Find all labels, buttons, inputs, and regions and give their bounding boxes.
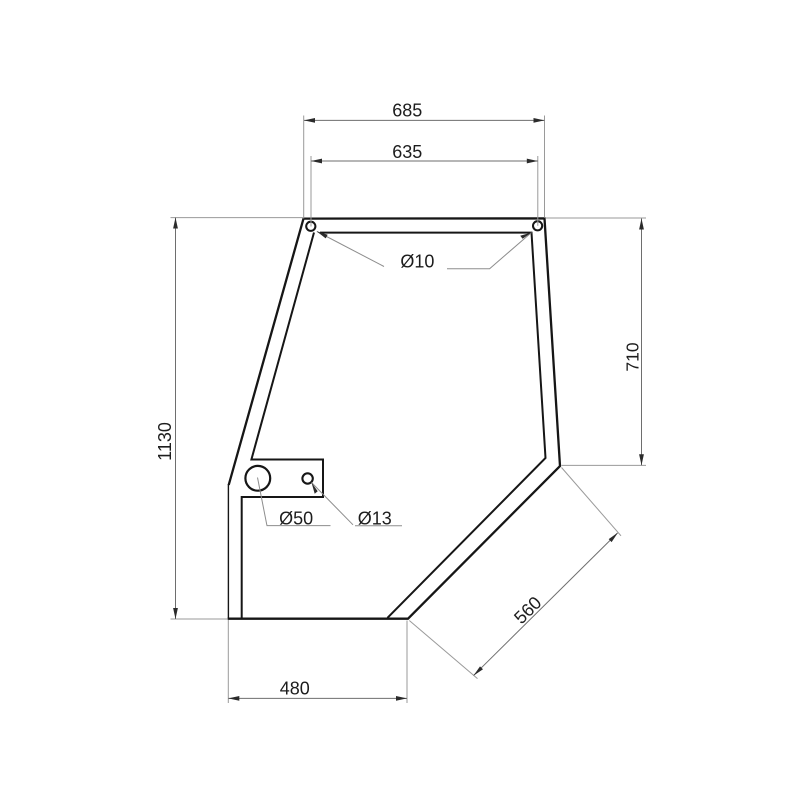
svg-text:710: 710 [622,342,642,371]
svg-text:1130: 1130 [155,422,175,461]
svg-text:Ø10: Ø10 [400,252,434,272]
svg-text:480: 480 [280,678,310,698]
svg-text:685: 685 [392,100,422,120]
svg-text:Ø13: Ø13 [358,509,392,529]
svg-text:635: 635 [392,142,422,162]
svg-text:Ø50: Ø50 [279,509,313,529]
